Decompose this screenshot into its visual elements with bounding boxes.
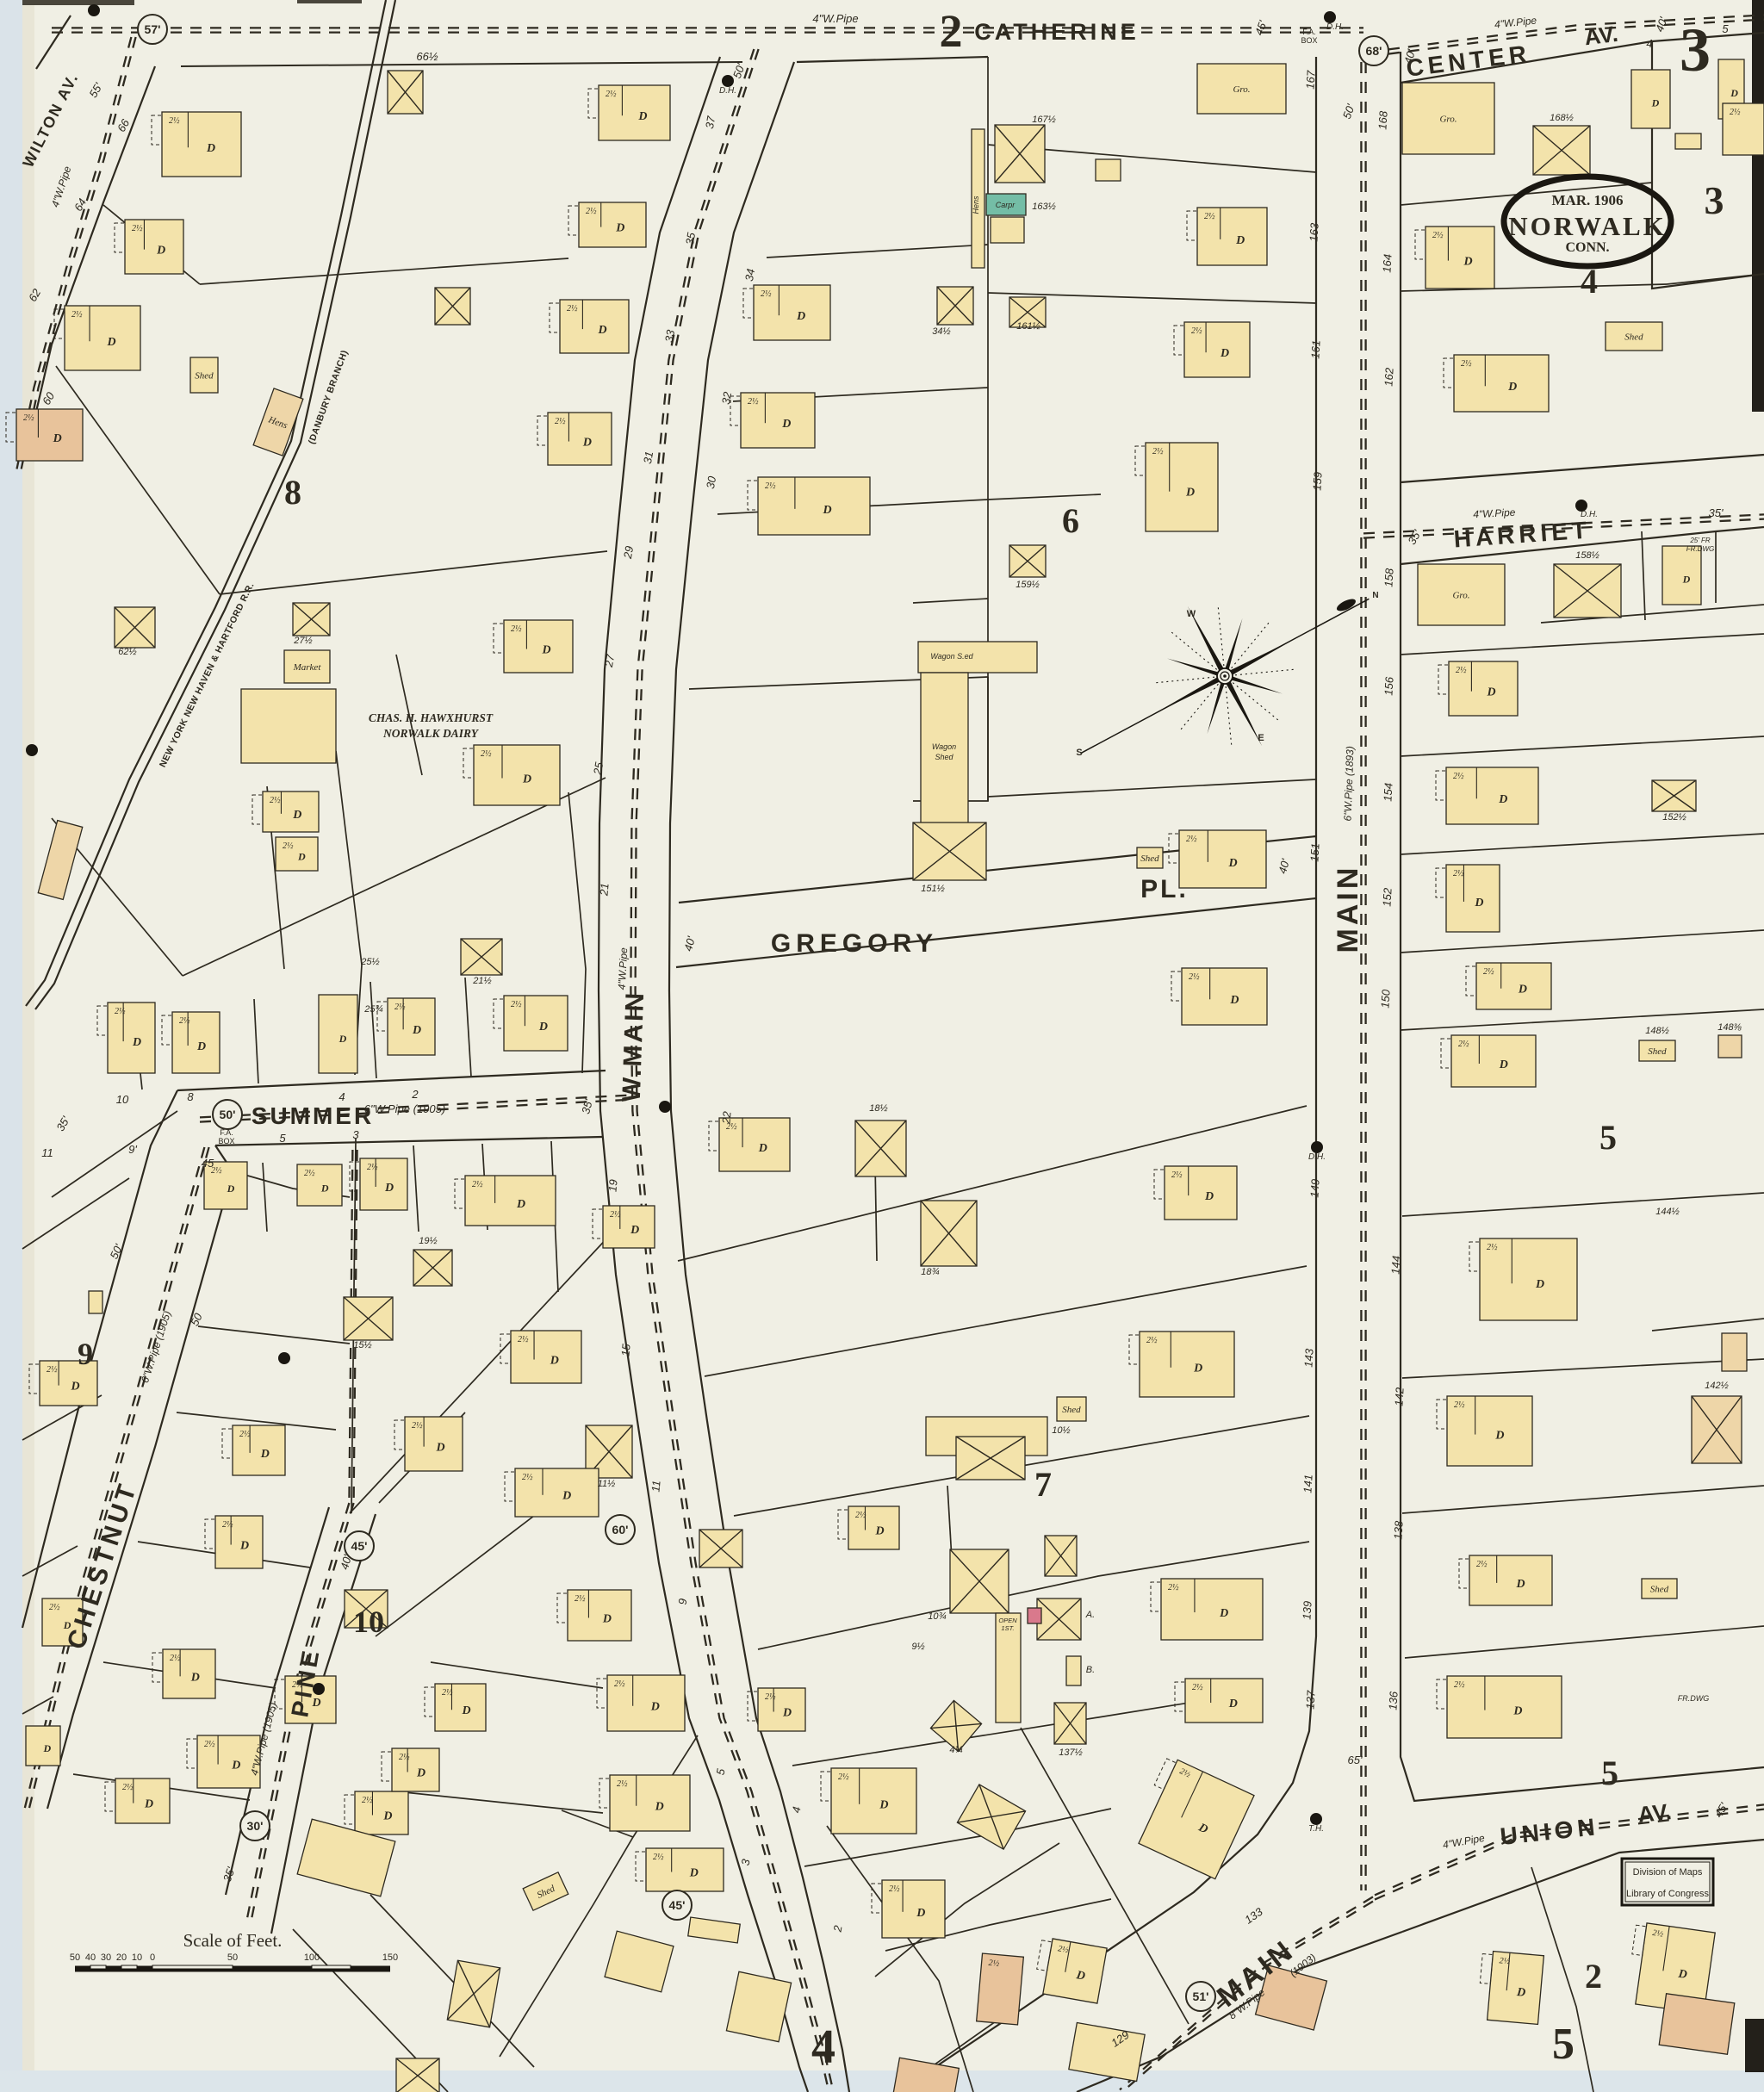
svg-text:D: D: [227, 1183, 235, 1195]
svg-text:8: 8: [187, 1090, 194, 1103]
svg-text:10: 10: [353, 1605, 384, 1639]
svg-text:D: D: [196, 1040, 206, 1053]
svg-text:D: D: [1220, 347, 1229, 360]
svg-text:Shed: Shed: [1624, 332, 1643, 343]
svg-text:D: D: [1518, 984, 1527, 996]
svg-text:2½: 2½: [442, 1688, 453, 1698]
svg-text:D: D: [823, 504, 832, 517]
svg-text:D: D: [1474, 897, 1483, 909]
svg-text:8: 8: [284, 473, 301, 512]
svg-text:2½: 2½: [399, 1753, 410, 1762]
svg-text:57': 57': [145, 22, 161, 36]
svg-text:2: 2: [411, 1088, 419, 1101]
svg-text:2½: 2½: [518, 1335, 529, 1344]
svg-text:9': 9': [128, 1143, 137, 1156]
svg-text:2: 2: [1585, 1957, 1602, 1996]
svg-text:D: D: [1507, 381, 1517, 394]
svg-text:2½: 2½: [204, 1740, 215, 1749]
svg-text:D: D: [1651, 96, 1660, 109]
svg-text:2½: 2½: [1146, 1336, 1158, 1345]
svg-text:2½: 2½: [1487, 1243, 1498, 1252]
svg-text:1ST.: 1ST.: [1001, 1624, 1014, 1632]
svg-text:D: D: [637, 110, 647, 123]
svg-text:2½: 2½: [1454, 1680, 1465, 1690]
svg-text:11½: 11½: [598, 1479, 616, 1489]
svg-text:D: D: [796, 310, 805, 323]
svg-text:4"W.Pipe: 4"W.Pipe: [1473, 506, 1516, 521]
svg-text:142: 142: [1392, 1387, 1406, 1406]
svg-text:2½: 2½: [586, 207, 597, 216]
svg-text:Scale of Feet.: Scale of Feet.: [183, 1930, 283, 1951]
svg-text:50: 50: [70, 1952, 80, 1963]
svg-text:50': 50': [220, 1108, 236, 1121]
svg-text:2½: 2½: [49, 1603, 60, 1612]
svg-text:D: D: [781, 418, 791, 431]
svg-text:2½: 2½: [1189, 972, 1200, 982]
svg-text:D: D: [875, 1524, 885, 1537]
svg-text:151½: 151½: [921, 884, 945, 894]
svg-text:Gro.: Gro.: [1452, 591, 1469, 601]
svg-text:2½: 2½: [472, 1180, 483, 1189]
svg-text:CONN.: CONN.: [1565, 240, 1609, 255]
svg-text:31: 31: [641, 450, 655, 465]
svg-text:21½: 21½: [472, 976, 491, 986]
svg-text:3: 3: [1705, 178, 1724, 222]
svg-text:29: 29: [621, 545, 636, 561]
svg-text:3: 3: [352, 1128, 359, 1141]
svg-text:144: 144: [1388, 1256, 1402, 1275]
svg-text:45: 45: [202, 1157, 214, 1170]
svg-text:158½: 158½: [1575, 550, 1599, 561]
svg-text:2½: 2½: [889, 1884, 900, 1894]
svg-text:Shed: Shed: [1648, 1046, 1667, 1057]
svg-text:D.H.: D.H.: [719, 86, 736, 96]
svg-text:2½: 2½: [1171, 1170, 1183, 1180]
svg-text:65': 65': [1348, 1754, 1363, 1766]
svg-text:19½: 19½: [419, 1236, 437, 1246]
svg-text:D: D: [190, 1671, 200, 1684]
svg-text:Gro.: Gro.: [1439, 115, 1457, 125]
svg-text:D: D: [156, 245, 165, 258]
svg-text:D: D: [542, 643, 551, 656]
svg-text:167½: 167½: [1032, 115, 1056, 125]
svg-text:2½: 2½: [610, 1210, 621, 1220]
svg-text:2½: 2½: [239, 1430, 251, 1439]
svg-text:D: D: [1494, 1429, 1504, 1442]
svg-text:D: D: [562, 1490, 571, 1503]
svg-text:4"W.Pipe: 4"W.Pipe: [616, 947, 630, 990]
svg-text:34: 34: [742, 268, 757, 282]
svg-text:PL.: PL.: [1140, 875, 1189, 903]
svg-text:N: N: [1372, 591, 1378, 600]
svg-text:D: D: [416, 1766, 425, 1779]
svg-text:136: 136: [1386, 1691, 1400, 1710]
svg-text:100: 100: [304, 1952, 320, 1963]
svg-text:D: D: [1193, 1363, 1202, 1375]
svg-text:2½: 2½: [23, 413, 34, 423]
svg-text:2½: 2½: [1168, 1583, 1179, 1592]
svg-text:50: 50: [227, 1952, 238, 1963]
svg-text:144½: 144½: [1655, 1207, 1680, 1217]
svg-text:W: W: [1187, 609, 1196, 619]
svg-text:D: D: [1463, 256, 1473, 269]
svg-text:11: 11: [649, 1480, 662, 1493]
svg-text:2½: 2½: [47, 1365, 58, 1375]
svg-text:D: D: [435, 1442, 444, 1455]
svg-text:161½: 161½: [1016, 321, 1040, 332]
svg-text:6: 6: [1062, 501, 1079, 540]
svg-text:BOX: BOX: [1301, 36, 1317, 45]
svg-text:34½: 34½: [932, 326, 950, 337]
svg-text:168½: 168½: [1550, 113, 1574, 123]
svg-text:18½: 18½: [869, 1103, 887, 1114]
svg-text:10½: 10½: [1052, 1425, 1070, 1436]
svg-text:159½: 159½: [1016, 580, 1040, 590]
svg-text:3: 3: [1680, 16, 1711, 84]
svg-text:138: 138: [1391, 1520, 1405, 1540]
svg-text:2½: 2½: [522, 1473, 533, 1482]
svg-text:10¾: 10¾: [928, 1611, 946, 1622]
svg-text:0: 0: [150, 1952, 155, 1963]
svg-text:2½: 2½: [1204, 212, 1215, 221]
svg-text:11: 11: [41, 1146, 53, 1159]
svg-text:CHAS. H. HAWXHURST: CHAS. H. HAWXHURST: [369, 711, 494, 724]
svg-text:Division of Maps: Division of Maps: [1633, 1867, 1703, 1878]
svg-text:9½: 9½: [911, 1642, 924, 1652]
svg-text:2½: 2½: [511, 624, 522, 634]
svg-text:2½: 2½: [838, 1772, 849, 1782]
svg-text:15: 15: [618, 1343, 632, 1356]
svg-text:SUMMER: SUMMER: [252, 1102, 374, 1129]
svg-text:D.H.: D.H.: [1308, 1152, 1326, 1162]
svg-text:27½: 27½: [293, 636, 312, 646]
svg-text:D.H.: D.H.: [1581, 510, 1598, 519]
svg-text:Carpr: Carpr: [996, 201, 1016, 209]
svg-text:148⅜: 148⅜: [1717, 1022, 1742, 1033]
svg-text:D: D: [382, 1810, 392, 1822]
svg-text:141: 141: [1301, 1474, 1314, 1493]
svg-text:D: D: [106, 336, 115, 349]
svg-text:2½: 2½: [567, 304, 578, 313]
svg-text:20: 20: [116, 1952, 127, 1963]
svg-text:60': 60': [612, 1523, 629, 1536]
svg-text:2½: 2½: [606, 90, 617, 99]
svg-text:D: D: [1228, 857, 1238, 870]
svg-text:161: 161: [1308, 340, 1322, 359]
svg-text:S: S: [1076, 748, 1082, 758]
svg-text:2½: 2½: [1454, 1400, 1465, 1410]
svg-text:2½: 2½: [1458, 1040, 1469, 1049]
svg-text:2½: 2½: [1453, 772, 1464, 781]
svg-text:163½: 163½: [1032, 202, 1056, 212]
svg-text:Gro.: Gro.: [1233, 84, 1250, 95]
svg-text:D: D: [260, 1448, 270, 1461]
svg-text:2½: 2½: [1432, 231, 1444, 240]
svg-text:D: D: [582, 436, 592, 449]
svg-text:4: 4: [1646, 37, 1652, 50]
svg-text:139: 139: [1300, 1601, 1314, 1620]
svg-text:2½: 2½: [304, 1169, 315, 1178]
svg-text:Library of Congress: Library of Congress: [1626, 1889, 1709, 1899]
svg-text:2½: 2½: [575, 1594, 586, 1604]
svg-text:149: 149: [1307, 1179, 1321, 1198]
svg-text:Hens: Hens: [972, 196, 980, 214]
svg-text:2½: 2½: [855, 1511, 866, 1520]
svg-text:MAIN: MAIN: [1332, 865, 1364, 953]
svg-text:148½: 148½: [1645, 1026, 1669, 1036]
svg-text:154: 154: [1381, 783, 1394, 802]
svg-text:D: D: [1515, 1986, 1525, 2000]
svg-text:D: D: [297, 850, 306, 862]
svg-text:D: D: [650, 1701, 660, 1714]
svg-text:2½: 2½: [115, 1007, 126, 1016]
svg-text:137: 137: [1303, 1690, 1317, 1710]
svg-text:D: D: [538, 1021, 548, 1034]
svg-text:2½: 2½: [179, 1016, 190, 1026]
svg-text:9: 9: [676, 1598, 690, 1605]
svg-text:2½: 2½: [169, 116, 180, 126]
svg-text:D: D: [239, 1539, 249, 1552]
svg-text:5: 5: [279, 1132, 286, 1145]
svg-text:D: D: [1235, 234, 1245, 247]
svg-text:D.H.: D.H.: [1326, 22, 1344, 32]
svg-text:156: 156: [1382, 676, 1395, 696]
svg-text:137½: 137½: [1059, 1747, 1083, 1758]
svg-text:45': 45': [669, 1898, 686, 1912]
svg-text:D: D: [689, 1866, 699, 1879]
svg-text:D: D: [602, 1612, 612, 1625]
svg-text:30: 30: [101, 1952, 111, 1963]
svg-text:2½: 2½: [1453, 869, 1464, 878]
svg-text:D: D: [550, 1354, 559, 1367]
svg-text:D: D: [758, 1142, 767, 1155]
svg-text:2½: 2½: [1191, 326, 1202, 336]
svg-text:NORWALK DAIRY: NORWALK DAIRY: [382, 727, 480, 740]
svg-text:62½: 62½: [118, 647, 136, 657]
svg-text:66½: 66½: [416, 50, 438, 63]
svg-text:Shed: Shed: [935, 753, 953, 761]
svg-text:152: 152: [1380, 887, 1394, 907]
svg-text:2½: 2½: [394, 1003, 406, 1012]
svg-text:150: 150: [1378, 989, 1392, 1009]
svg-text:D: D: [522, 773, 531, 785]
svg-text:2½: 2½: [653, 1853, 664, 1862]
svg-text:D: D: [292, 809, 301, 822]
svg-text:6"W.Pipe (1905): 6"W.Pipe (1905): [364, 1102, 445, 1115]
svg-text:45': 45': [351, 1539, 368, 1553]
svg-text:22: 22: [719, 1110, 733, 1125]
svg-text:25¾: 25¾: [363, 1004, 382, 1015]
svg-text:10: 10: [132, 1952, 142, 1963]
svg-text:5: 5: [1599, 1118, 1617, 1157]
svg-text:2: 2: [940, 5, 963, 57]
svg-text:Wagon S.ed: Wagon S.ed: [930, 652, 973, 661]
svg-text:D: D: [655, 1801, 664, 1814]
svg-text:2½: 2½: [481, 749, 492, 759]
svg-text:D: D: [70, 1381, 79, 1394]
svg-text:30': 30': [247, 1819, 264, 1833]
svg-text:D: D: [412, 1024, 421, 1037]
svg-text:D: D: [339, 1033, 347, 1045]
svg-text:162: 162: [1382, 367, 1395, 387]
svg-text:AV.: AV.: [1583, 21, 1619, 51]
svg-text:18¾: 18¾: [921, 1267, 939, 1277]
svg-text:142½: 142½: [1705, 1381, 1729, 1391]
svg-text:4¼: 4¼: [949, 1745, 962, 1755]
svg-text:4"W.Pipe: 4"W.Pipe: [812, 12, 858, 25]
svg-text:4: 4: [339, 1090, 345, 1103]
svg-text:2½: 2½: [1652, 1928, 1664, 1940]
svg-text:2½: 2½: [1192, 1683, 1203, 1692]
svg-text:D: D: [879, 1799, 888, 1812]
svg-text:2½: 2½: [511, 1000, 522, 1009]
svg-text:D: D: [231, 1759, 240, 1772]
svg-text:D: D: [1515, 1578, 1525, 1591]
svg-text:D: D: [462, 1704, 471, 1717]
svg-text:D: D: [1487, 686, 1496, 699]
svg-text:D: D: [1204, 1190, 1214, 1203]
svg-text:152½: 152½: [1662, 812, 1686, 823]
svg-text:2½: 2½: [412, 1421, 423, 1431]
svg-text:NORWALK: NORWALK: [1508, 211, 1667, 241]
svg-text:2½: 2½: [765, 1692, 776, 1702]
svg-text:OPEN: OPEN: [998, 1617, 1017, 1624]
svg-text:21: 21: [597, 883, 611, 897]
svg-text:CATHERINE: CATHERINE: [974, 19, 1140, 45]
svg-text:2½: 2½: [270, 796, 281, 805]
svg-text:A.: A.: [1085, 1610, 1095, 1620]
svg-text:D: D: [598, 324, 607, 337]
svg-text:150: 150: [382, 1952, 398, 1963]
svg-text:159: 159: [1310, 472, 1324, 491]
svg-text:W.MAIN: W.MAIN: [618, 990, 650, 1102]
svg-text:Wagon: Wagon: [932, 742, 956, 751]
svg-text:2½: 2½: [1476, 1560, 1488, 1569]
svg-text:Shed: Shed: [1140, 854, 1159, 864]
svg-text:D: D: [630, 1224, 639, 1237]
svg-text:Shed: Shed: [1650, 1585, 1669, 1595]
svg-text:2½: 2½: [170, 1654, 181, 1663]
svg-text:5: 5: [1722, 22, 1729, 35]
svg-text:2½: 2½: [617, 1779, 628, 1789]
svg-text:2½: 2½: [71, 310, 83, 320]
svg-text:E: E: [1258, 733, 1264, 743]
svg-text:5: 5: [1601, 1754, 1618, 1792]
svg-text:MAR. 1906: MAR. 1906: [1551, 192, 1623, 208]
svg-text:D: D: [1499, 1058, 1508, 1071]
svg-text:D: D: [1682, 573, 1691, 585]
svg-text:D: D: [1229, 994, 1239, 1007]
svg-text:D: D: [1498, 793, 1507, 806]
svg-text:2½: 2½: [1730, 108, 1741, 117]
svg-text:2½: 2½: [555, 417, 566, 426]
svg-text:Market: Market: [293, 662, 322, 673]
svg-text:2½: 2½: [1186, 835, 1197, 844]
svg-text:D: D: [516, 1198, 525, 1211]
svg-text:D: D: [1228, 1698, 1238, 1710]
svg-text:51': 51': [1193, 1990, 1209, 2003]
svg-text:D: D: [1677, 1968, 1688, 1982]
svg-text:D: D: [1730, 87, 1738, 99]
svg-text:151: 151: [1307, 843, 1321, 862]
svg-text:2½: 2½: [1152, 447, 1164, 456]
svg-text:2½: 2½: [362, 1796, 373, 1805]
svg-text:25' FR: 25' FR: [1689, 537, 1711, 544]
svg-text:2½: 2½: [1461, 359, 1472, 369]
svg-text:143: 143: [1301, 1348, 1315, 1368]
svg-text:D: D: [1535, 1278, 1544, 1291]
svg-text:D: D: [1219, 1607, 1228, 1620]
svg-text:D: D: [916, 1907, 925, 1920]
svg-text:2½: 2½: [222, 1520, 233, 1530]
svg-text:158: 158: [1382, 568, 1395, 587]
svg-text:2½: 2½: [367, 1163, 378, 1172]
svg-text:FR.DWG: FR.DWG: [1678, 1694, 1710, 1703]
svg-text:163: 163: [1307, 222, 1320, 242]
svg-text:GREGORY: GREGORY: [771, 929, 938, 958]
svg-text:2½: 2½: [761, 289, 772, 299]
svg-text:B.: B.: [1086, 1665, 1095, 1675]
svg-text:2½: 2½: [1499, 1956, 1511, 1966]
svg-text:68': 68': [1366, 44, 1382, 58]
svg-text:2½: 2½: [132, 224, 143, 233]
svg-text:D: D: [1512, 1705, 1522, 1718]
svg-text:40: 40: [85, 1952, 96, 1963]
svg-text:T.H.: T.H.: [1308, 1824, 1324, 1834]
svg-text:BOX: BOX: [218, 1137, 234, 1145]
svg-text:Shed: Shed: [1062, 1405, 1081, 1415]
svg-text:25½: 25½: [360, 957, 379, 967]
svg-text:15½: 15½: [353, 1340, 371, 1350]
svg-text:F.A.: F.A.: [1302, 28, 1316, 36]
svg-text:35': 35': [1709, 506, 1724, 519]
svg-text:164: 164: [1380, 254, 1394, 273]
svg-text:19: 19: [606, 1179, 619, 1193]
svg-text:D: D: [132, 1036, 141, 1049]
svg-text:D: D: [384, 1182, 394, 1195]
svg-text:FR.DWG: FR.DWG: [1686, 545, 1714, 553]
svg-text:D: D: [320, 1182, 329, 1194]
svg-text:D: D: [144, 1798, 153, 1811]
svg-text:168: 168: [1376, 110, 1389, 130]
svg-text:2½: 2½: [614, 1679, 625, 1689]
svg-text:2½: 2½: [1057, 1944, 1070, 1955]
svg-text:D: D: [1185, 487, 1195, 500]
svg-text:2½: 2½: [1456, 666, 1467, 675]
svg-text:2½: 2½: [1483, 967, 1494, 977]
svg-text:D: D: [53, 432, 62, 445]
svg-text:D: D: [206, 142, 215, 155]
svg-text:D: D: [42, 1742, 51, 1754]
svg-text:167: 167: [1303, 70, 1317, 90]
svg-text:2½: 2½: [748, 397, 759, 407]
svg-text:5: 5: [1552, 2020, 1575, 2069]
svg-text:Shed: Shed: [195, 371, 214, 382]
svg-text:D: D: [782, 1706, 792, 1719]
svg-text:2½: 2½: [283, 841, 294, 851]
svg-text:D: D: [615, 222, 624, 235]
svg-text:AV.: AV.: [1637, 1798, 1673, 1828]
svg-text:4: 4: [811, 2021, 835, 2074]
svg-text:10: 10: [116, 1093, 129, 1106]
svg-text:2½: 2½: [765, 481, 776, 491]
svg-text:9: 9: [78, 1337, 93, 1371]
svg-text:2½: 2½: [988, 1959, 1000, 1969]
svg-text:7: 7: [1034, 1465, 1052, 1504]
svg-text:2½: 2½: [122, 1783, 134, 1792]
